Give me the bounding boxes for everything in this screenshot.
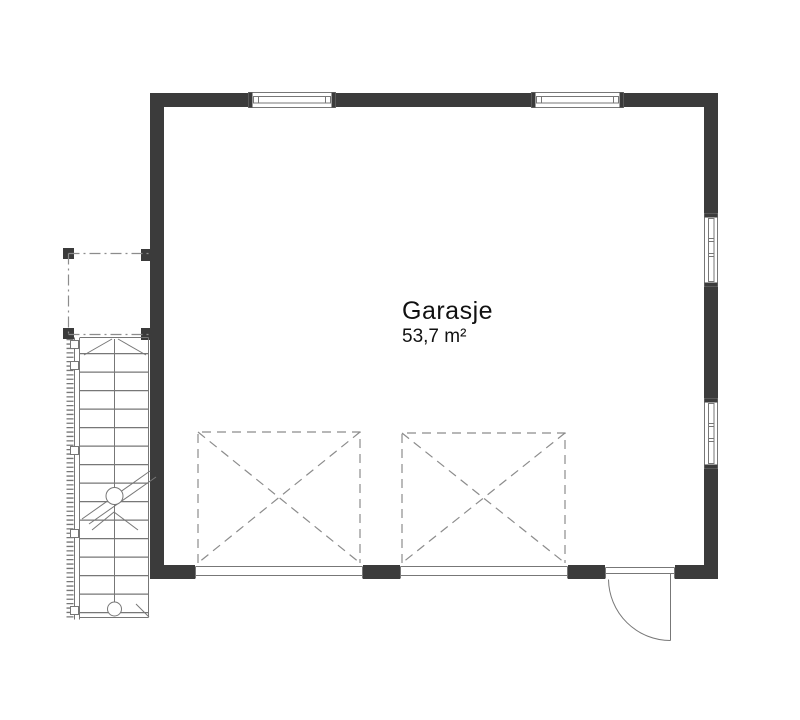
stair-break-line-2 bbox=[89, 477, 156, 524]
garage-door-zone-left bbox=[198, 432, 360, 563]
floor-plan-drawing bbox=[0, 0, 800, 720]
room-name-label: Garasje bbox=[402, 297, 493, 326]
stair-break-circle bbox=[106, 488, 123, 505]
wall-bottom-pier-3 bbox=[568, 565, 605, 579]
wall-left bbox=[150, 93, 164, 579]
garage-door-zone-right bbox=[402, 433, 565, 563]
outer-walls bbox=[63, 93, 718, 579]
roof-overhang-outline bbox=[69, 254, 151, 335]
garage-door-panel-right bbox=[401, 567, 568, 579]
garage-door-zones bbox=[198, 432, 565, 563]
stair-walkline-start-circle bbox=[108, 602, 122, 616]
window-top-right bbox=[532, 93, 624, 108]
entry-door bbox=[606, 568, 675, 641]
window-top-left bbox=[249, 93, 336, 108]
window-right-upper bbox=[705, 214, 718, 287]
floor-plan-canvas: Garasje 53,7 m² bbox=[0, 0, 800, 720]
entry-door-swing-arc bbox=[609, 580, 671, 641]
wall-top bbox=[150, 93, 718, 107]
room-area-label: 53,7 m² bbox=[402, 326, 466, 348]
external-stair bbox=[70, 338, 156, 620]
wall-bottom-pier-1 bbox=[150, 565, 195, 579]
garage-door-panel-left bbox=[196, 567, 363, 579]
overhang-wall-post-top bbox=[141, 249, 151, 261]
window-right-lower bbox=[705, 399, 718, 469]
wall-bottom-pier-2 bbox=[363, 565, 400, 579]
wall-bottom-pier-4 bbox=[675, 565, 718, 579]
wall-right bbox=[704, 93, 718, 579]
